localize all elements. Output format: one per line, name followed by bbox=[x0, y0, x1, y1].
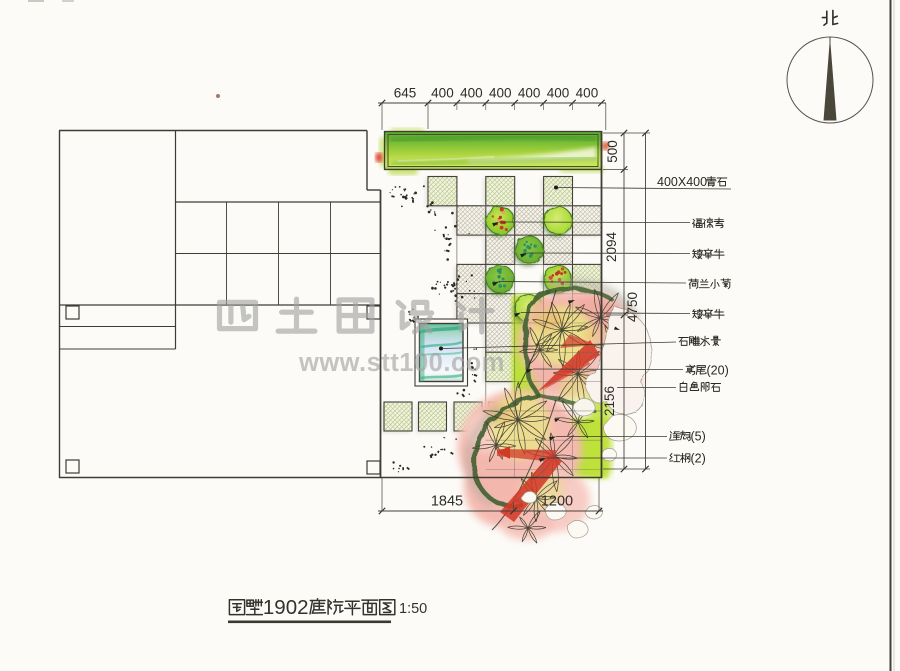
svg-text:www.stt100.com: www.stt100.com bbox=[298, 349, 505, 377]
svg-text:2156: 2156 bbox=[602, 386, 617, 416]
svg-text:400: 400 bbox=[489, 86, 512, 101]
svg-text:4750: 4750 bbox=[625, 292, 640, 322]
svg-text:(5): (5) bbox=[691, 429, 706, 443]
svg-text:400: 400 bbox=[431, 86, 454, 101]
svg-text:500: 500 bbox=[605, 140, 620, 163]
svg-text:(2): (2) bbox=[691, 451, 706, 465]
svg-text:1200: 1200 bbox=[541, 494, 573, 510]
svg-text:400: 400 bbox=[518, 86, 541, 101]
svg-text:1845: 1845 bbox=[431, 494, 463, 510]
svg-text:(20): (20) bbox=[707, 363, 729, 377]
svg-text:400X400: 400X400 bbox=[657, 175, 707, 189]
svg-text:2094: 2094 bbox=[604, 231, 619, 262]
svg-text:1:50: 1:50 bbox=[399, 601, 427, 617]
svg-text:1902: 1902 bbox=[263, 596, 309, 619]
svg-text:400: 400 bbox=[576, 86, 599, 101]
svg-text:400: 400 bbox=[460, 86, 483, 101]
svg-text:645: 645 bbox=[394, 86, 417, 101]
svg-text:400: 400 bbox=[547, 86, 570, 101]
